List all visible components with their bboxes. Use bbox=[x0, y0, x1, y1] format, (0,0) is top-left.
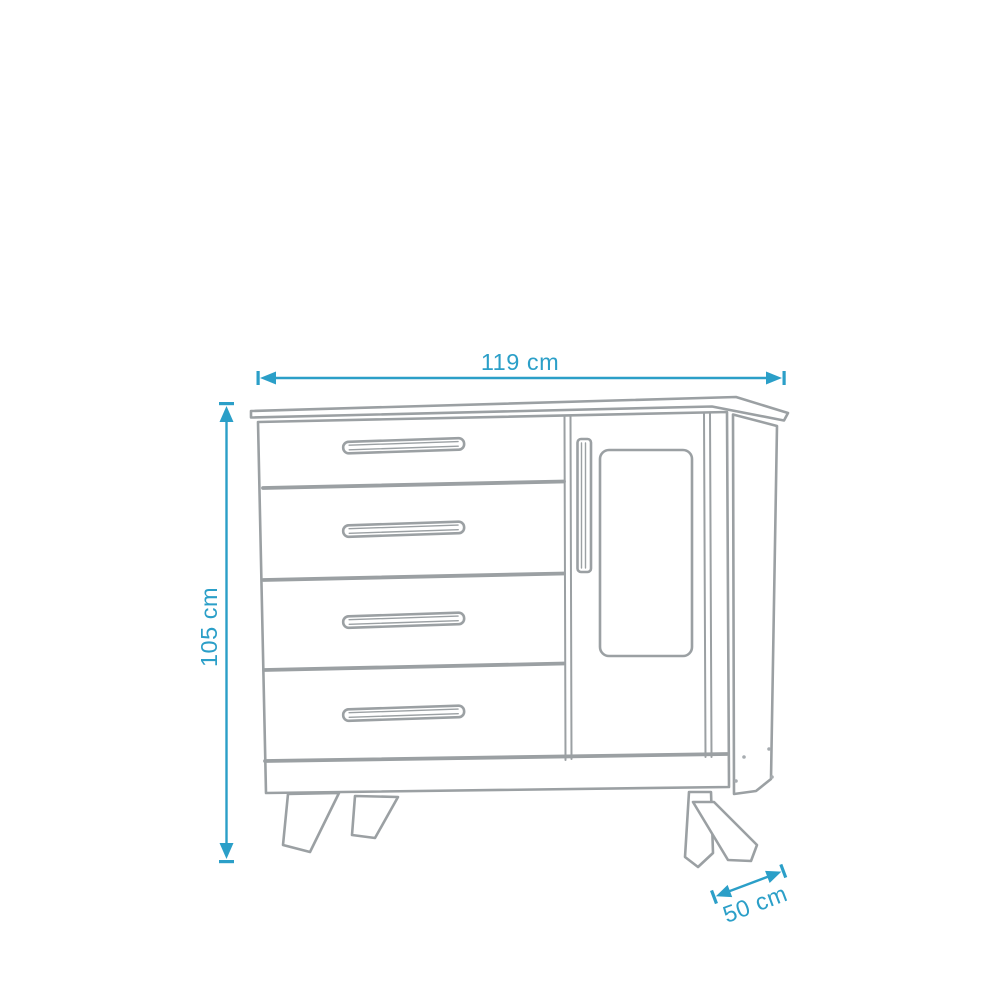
depth-dimension-label: 50 cm bbox=[719, 880, 790, 928]
dresser-front-face bbox=[258, 412, 729, 793]
depth-dim-tick-near bbox=[710, 890, 718, 904]
width-dim-tick-right bbox=[783, 371, 786, 385]
width-dimension: 119 cm bbox=[257, 349, 786, 385]
rear-left-leg bbox=[352, 796, 398, 838]
front-left-leg bbox=[283, 793, 339, 852]
dresser-drawing bbox=[251, 397, 788, 867]
center-stile-line-right bbox=[571, 416, 572, 759]
width-dim-tick-left bbox=[257, 371, 260, 385]
depth-dim-tick-far bbox=[779, 864, 787, 878]
dresser-dimension-diagram: 119 cm 105 cm 50 cm bbox=[0, 0, 1000, 1000]
diagram-canvas: 119 cm 105 cm 50 cm bbox=[0, 0, 1000, 1000]
depth-dimension: 50 cm bbox=[710, 864, 797, 930]
height-dim-tick-top bbox=[219, 402, 234, 405]
height-dim-tick-bottom bbox=[219, 860, 234, 863]
dresser-side-panel bbox=[733, 415, 777, 795]
width-dimension-label: 119 cm bbox=[481, 349, 559, 375]
height-dimension: 105 cm bbox=[196, 402, 234, 863]
center-stile-line-left bbox=[565, 416, 566, 760]
height-dimension-label: 105 cm bbox=[196, 587, 222, 667]
